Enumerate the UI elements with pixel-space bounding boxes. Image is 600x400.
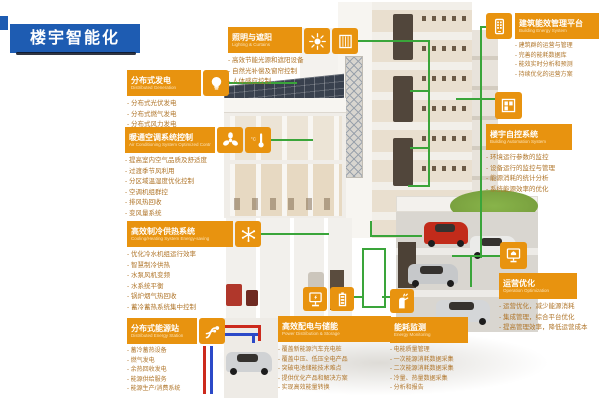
- callout-operation-optimization-items: 运营优化，减少能源消耗集成管理，综合平台优化提高管理效率，降低运营成本: [499, 303, 599, 335]
- cold-pipe: [225, 333, 261, 336]
- callout-title: 暖通空调系统控制: [129, 133, 211, 142]
- red-car: [424, 222, 468, 244]
- callout-cooling-heating-items: 优化冷水机组运行效率智慧制冷供热水泵风机变频水系统平衡锅炉烟气热回收蓄冷蓄热系统…: [127, 251, 233, 314]
- callout-energy-platform-header: 建筑能效管理平台 Building Energy System: [515, 13, 599, 39]
- connector-line: [410, 147, 428, 149]
- bullet-item: 分布式光伏发电: [127, 100, 207, 107]
- sun-icon: [304, 28, 330, 54]
- bullet-item: 完善的能耗数据库: [515, 53, 600, 60]
- callout-subtitle: Operation Optimization: [503, 288, 573, 294]
- silver-car: [226, 352, 272, 372]
- slide-title-banner: 楼宇智能化: [10, 24, 140, 53]
- callout-subtitle: Building Automation System: [490, 139, 568, 145]
- connector-line: [382, 296, 390, 298]
- bullet-item: 排风热回收: [125, 199, 225, 206]
- callout-title: 运营优化: [503, 279, 573, 288]
- callout-subtitle: Lighting & Curtains: [232, 42, 298, 48]
- banner-shadow: [16, 52, 136, 55]
- callout-subtitle: Energy Monitoring: [394, 332, 464, 338]
- silver-car: [408, 264, 458, 284]
- callout-subtitle: Air Conditioning System Optimized Contro…: [129, 142, 211, 148]
- connector-line: [358, 40, 430, 42]
- bullet-item: 能源生产/消费系统: [127, 386, 219, 393]
- cold-pipe: [252, 333, 255, 343]
- tower-window-slot: [393, 76, 413, 122]
- bullet-item: 空调机组群控: [125, 189, 225, 196]
- bullet-item: 能源供给服务: [127, 377, 219, 384]
- connector-line: [456, 98, 496, 100]
- callout-cooling-heating-header: 高效制冷供热系统 Cooling/Heating System Energy-s…: [127, 221, 233, 247]
- connector-line: [261, 233, 329, 235]
- bullet-item: 人体感应控制: [228, 78, 320, 85]
- callout-lighting-curtains-header: 照明与遮阳 Lighting & Curtains: [228, 27, 302, 53]
- bullet-item: 锅炉烟气热回收: [127, 293, 233, 300]
- bullet-item: 分布式燃气发电: [127, 111, 207, 118]
- bullet-item: 环境运行参数的监控: [486, 154, 586, 161]
- callout-subtitle: Building Energy System: [519, 28, 595, 34]
- lightbulb-icon: [203, 70, 229, 96]
- callout-title: 楼宇自控系统: [490, 130, 568, 139]
- fan-icon: [217, 127, 243, 153]
- callout-title: 建筑能效管理平台: [519, 19, 595, 28]
- bullet-item: 持续优化的运营方案: [515, 72, 600, 79]
- bullet-item: 一次能源消耗数据采集: [390, 357, 496, 364]
- connector-line: [410, 90, 428, 92]
- callout-title: 分布式能源站: [131, 324, 193, 333]
- connector-line: [452, 255, 502, 257]
- wing-parapet: [224, 98, 346, 113]
- elevator-lattice: [345, 56, 363, 178]
- bullet-item: 提供优化产品和解决方案: [278, 376, 390, 383]
- callout-title: 能耗监测: [394, 323, 464, 332]
- bullet-item: 建筑群的运营与管理: [515, 43, 600, 50]
- battery-icon: [330, 287, 354, 311]
- callout-energy-station-items: 蓄冷蓄热设备燃气发电余热回收发电能源供给服务能源生产/消费系统: [127, 348, 219, 396]
- bullet-item: 高效节能光源和遮阳设备: [228, 57, 320, 64]
- callout-building-automation-header: 楼宇自控系统 Building Automation System: [486, 124, 572, 150]
- connector-line: [370, 235, 422, 237]
- thermometer-icon: °C: [245, 127, 271, 153]
- bullet-item: 智慧制冷供热: [127, 262, 233, 269]
- callout-lighting-curtains-items: 高效节能光源和遮阳设备自然光补偿及窗帘控制人体感应控制: [228, 57, 320, 89]
- bullet-item: 集成管理，综合平台优化: [499, 314, 599, 321]
- boiler-machine-dark: [246, 290, 258, 306]
- bullet-item: 优化冷水机组运行效率: [127, 251, 233, 258]
- bullet-item: 水系统平衡: [127, 283, 233, 290]
- callout-hvac-header: 暖通空调系统控制 Air Conditioning System Optimiz…: [125, 127, 215, 153]
- thermometer-label: °C: [250, 136, 256, 142]
- bullet-item: 能源消耗的统计分析: [486, 175, 586, 182]
- bullet-item: 蓄冷蓄热系统集中控制: [127, 304, 233, 311]
- smartphone-icon: [486, 13, 512, 39]
- bullet-item: 过渡季节风利用: [125, 168, 225, 175]
- tower-window-slot: [393, 138, 413, 186]
- monitor-house-icon: [500, 242, 527, 269]
- charging-gun-icon: [390, 289, 414, 313]
- bullet-item: 余热回收发电: [127, 367, 219, 374]
- callout-title: 分布式发电: [131, 76, 197, 85]
- hot-pipe: [225, 325, 261, 328]
- callout-energy-monitoring-header: 能耗监测 Energy Monitoring: [390, 317, 468, 343]
- bullet-item: 电能质量管理: [390, 347, 496, 354]
- snowflake-icon: [235, 221, 261, 247]
- callout-subtitle: Cooling/Heating System Energy-saving: [131, 236, 229, 242]
- window-panels-icon: [495, 92, 522, 119]
- callout-energy-platform-items: 建筑群的运营与管理完善的能耗数据库能效实时分析和预测持续优化的运营方案: [515, 43, 600, 81]
- callout-power-distribution-items: 覆盖新能源汽车充电桩覆盖中压、低压全电产品突破电池储能技术难点提供优化产品和解决…: [278, 347, 390, 395]
- callout-power-distribution-header: 高效配电与储能 Power Distribution & Storage: [278, 316, 391, 342]
- callout-subtitle: Distributed Energy Station: [131, 333, 193, 339]
- callout-energy-monitoring-items: 电能质量管理一次能源消耗数据采集二次能源消耗数据采集冷量、热量数据采集分析和报告: [390, 347, 496, 395]
- bullet-item: 提高管理效率，降低运营成本: [499, 324, 599, 331]
- connector-line: [470, 255, 472, 287]
- bullet-item: 能效实时分析和预测: [515, 62, 600, 69]
- callout-hvac-items: 提高室内空气品质及舒适度过渡季节风利用分区域温湿度优化控制空调机组群控排风热回收…: [125, 157, 225, 220]
- bullet-item: 分析和报告: [390, 385, 496, 392]
- bullet-item: 冷量、热量数据采集: [390, 376, 496, 383]
- callout-subtitle: Distributed Generation: [131, 85, 197, 91]
- slide-canvas: 楼宇智能化 分布式发电 Distributed Generation 分布式光伏…: [0, 0, 600, 400]
- connector-line: [408, 185, 430, 187]
- bullet-item: 自然光补偿及窗帘控制: [228, 68, 320, 75]
- floor-shelves: [422, 16, 468, 21]
- bullet-item: 分区域温湿度优化控制: [125, 178, 225, 185]
- bullet-item: 突破电池储能技术难点: [278, 366, 390, 373]
- tower-window-slot: [393, 14, 413, 60]
- bullet-item: 运营优化，减少能源消耗: [499, 303, 599, 310]
- ev-charger-icon: [303, 287, 327, 311]
- callout-energy-station-header: 分布式能源站 Distributed Energy Station: [127, 318, 197, 344]
- bullet-item: 系统能源效率的优化: [486, 186, 586, 193]
- pipes-icon: [199, 318, 225, 344]
- bullet-item: 水泵风机变频: [127, 272, 233, 279]
- connector-trunk: [480, 26, 482, 258]
- callout-distributed-generation-header: 分布式发电 Distributed Generation: [127, 70, 201, 96]
- callout-operation-optimization-header: 运营优化 Operation Optimization: [499, 273, 577, 299]
- bullet-item: 覆盖新能源汽车充电桩: [278, 347, 390, 354]
- connector-line: [354, 296, 362, 298]
- callout-subtitle: Power Distribution & Storage: [282, 331, 387, 337]
- callout-title: 照明与遮阳: [232, 33, 298, 42]
- blinds-icon: [332, 28, 358, 54]
- bullet-item: 实现高效能量转换: [278, 385, 390, 392]
- connector-line: [428, 40, 430, 187]
- bullet-item: 变风量系统: [125, 210, 225, 217]
- wing-furniture: [234, 198, 338, 210]
- bullet-item: 燃气发电: [127, 358, 219, 365]
- bullet-item: 蓄冷蓄热设备: [127, 348, 219, 355]
- bullet-item: 覆盖中压、低压全电产品: [278, 357, 390, 364]
- bullet-item: 二次能源消耗数据采集: [390, 366, 496, 373]
- connector-loop: [362, 248, 386, 308]
- connector-line: [271, 139, 313, 141]
- callout-title: 高效制冷供热系统: [131, 227, 229, 236]
- slide-title: 楼宇智能化: [30, 30, 120, 47]
- callout-title: 高效配电与储能: [282, 322, 387, 331]
- hot-pipe: [258, 325, 261, 341]
- bullet-item: 设备运行的监控与管理: [486, 165, 586, 172]
- bullet-item: 提高室内空气品质及舒适度: [125, 157, 225, 164]
- edge-accent: [0, 16, 8, 30]
- callout-building-automation-items: 环境运行参数的监控设备运行的监控与管理能源消耗的统计分析系统能源效率的优化: [486, 154, 586, 196]
